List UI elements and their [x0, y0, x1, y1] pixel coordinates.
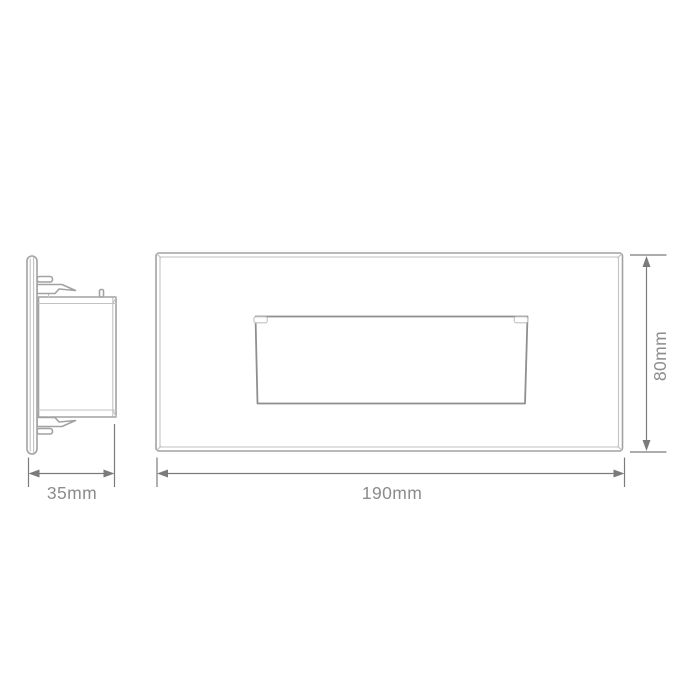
dimension-side-depth: 35mm	[29, 424, 115, 503]
aperture-outline	[256, 317, 528, 404]
arrow-left-icon	[157, 470, 168, 478]
top-clip-bar	[37, 277, 53, 283]
front-view	[156, 253, 623, 451]
arrow-right-icon	[104, 470, 115, 478]
light-aperture	[254, 317, 528, 404]
aperture-right-tab	[514, 317, 528, 323]
housing-top-nub	[100, 290, 104, 298]
bottom-spring-clip	[37, 418, 76, 435]
dimension-label-35mm: 35mm	[47, 483, 97, 503]
dimension-label-190mm: 190mm	[362, 483, 422, 503]
aperture-left-tab	[254, 317, 267, 323]
arrow-down-icon	[643, 440, 651, 451]
top-spring-clip	[37, 277, 76, 294]
housing-outline	[39, 297, 117, 417]
top-clip-spring-arm	[37, 285, 76, 294]
bottom-clip-spring-arm	[37, 418, 76, 427]
arrow-right-icon	[614, 470, 625, 478]
dimension-front-height: 80mm	[630, 255, 670, 452]
arrow-up-icon	[643, 256, 651, 267]
dimension-label-80mm: 80mm	[650, 331, 670, 381]
wall-light-dimension-diagram: 35mm 190mm 80mm	[0, 0, 700, 700]
dimension-front-width: 190mm	[157, 458, 625, 504]
faceplate-outline	[27, 256, 37, 454]
side-view	[27, 256, 116, 454]
side-view-housing	[37, 290, 116, 423]
side-view-faceplate	[27, 256, 37, 454]
technical-drawing-canvas: 35mm 190mm 80mm	[0, 0, 700, 700]
bottom-clip-bar	[37, 429, 53, 435]
arrow-left-icon	[29, 470, 40, 478]
